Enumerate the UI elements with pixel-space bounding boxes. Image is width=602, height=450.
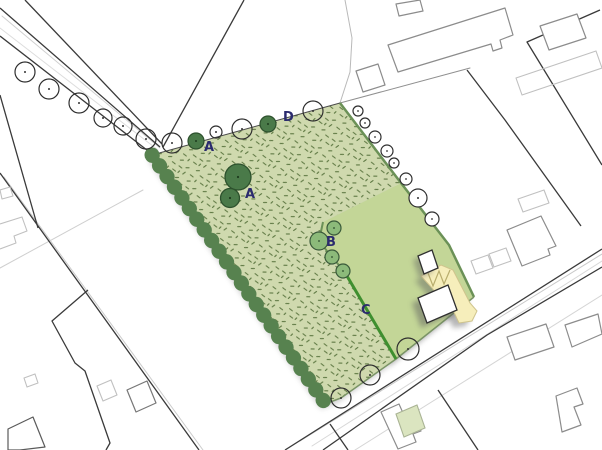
building-north-small	[396, 0, 423, 16]
building-north-square	[356, 64, 385, 92]
building-southeast-rect-2	[565, 314, 602, 347]
building-southwest-dark	[8, 417, 45, 450]
street-tree-dots	[24, 71, 173, 144]
shed-outline-east-2	[489, 248, 511, 267]
boundary-bottom-left-of-road	[330, 424, 348, 450]
building-west-stepped	[0, 217, 27, 249]
label-a-mid: A	[245, 187, 255, 202]
building-east-house	[507, 216, 556, 266]
building-southwest-square	[127, 381, 156, 412]
building-northeast-rect	[540, 14, 586, 50]
building-southeast-rect-1	[507, 324, 554, 360]
label-c: C	[361, 303, 371, 318]
building-north-barn	[388, 8, 513, 72]
west-boundary-steep	[0, 95, 38, 228]
road-b-edge-left	[163, 0, 244, 147]
boundary-below-road	[438, 390, 478, 450]
faint-twin-diagonal	[4, 177, 203, 450]
parcel-outline-northeast	[516, 51, 602, 95]
west-boundary-diagonal	[0, 173, 199, 450]
road-edge-faint-north	[340, 0, 352, 103]
shed-outline-southwest	[97, 380, 117, 401]
shed-outline-east-3	[471, 255, 493, 274]
plan-canvas: A A B C D	[0, 0, 602, 450]
shed-outline-southwest-2	[24, 374, 38, 387]
label-d: D	[283, 110, 294, 125]
label-b: B	[326, 235, 336, 250]
east-block-boundary	[467, 70, 581, 226]
label-a-top: A	[204, 140, 214, 155]
road-a-inner-line-2	[0, 28, 158, 150]
road-a-edge-1	[0, 8, 160, 147]
building-southeast-house	[556, 388, 583, 432]
shed-outline-west	[0, 187, 13, 199]
site-plan-map: A A B C D	[0, 0, 602, 450]
shed-outline-east	[518, 190, 549, 212]
